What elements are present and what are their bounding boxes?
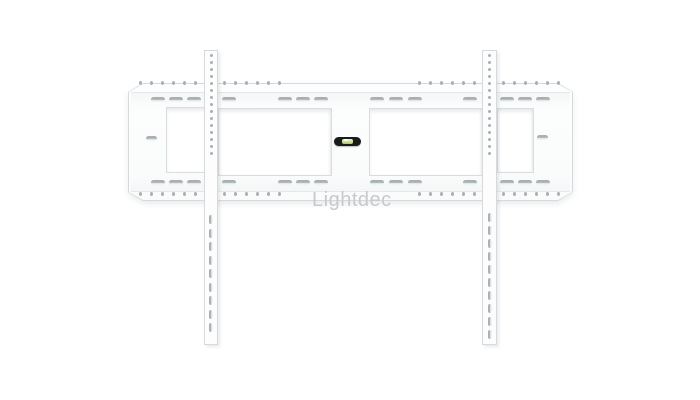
mounting-hole [172, 81, 175, 85]
mounting-slot [314, 180, 328, 185]
mounting-hole [267, 192, 270, 196]
rail-hole [488, 96, 491, 99]
rail-hole [488, 103, 491, 106]
mounting-hole [546, 81, 549, 85]
rail-slot [488, 278, 492, 287]
mounting-slot [536, 180, 550, 185]
rail-hole [488, 152, 491, 155]
mounting-hole [234, 81, 237, 85]
mounting-slot-mid [537, 135, 548, 140]
mounting-hole [473, 192, 476, 196]
rail-hole [488, 61, 491, 64]
mounting-slot [389, 180, 403, 185]
mounting-hole [150, 192, 153, 196]
mounting-hole [440, 81, 443, 85]
rail-hole [488, 117, 491, 120]
rail-slot [209, 323, 213, 332]
mounting-slot [408, 97, 422, 102]
mounting-slot-mid [146, 136, 157, 141]
mounting-hole [256, 81, 259, 85]
mounting-hole [502, 81, 505, 85]
mounting-slot [278, 97, 292, 102]
rail-slot [209, 229, 213, 238]
mounting-hole [473, 81, 476, 85]
rail-hole [210, 96, 213, 99]
mounting-hole [234, 192, 237, 196]
rail-slot [488, 291, 492, 300]
mounting-hole [139, 81, 142, 85]
plate-cutout-right [497, 108, 534, 173]
mounting-hole [513, 81, 516, 85]
mounting-slot [169, 180, 183, 185]
rail-slot [209, 310, 213, 319]
mounting-slot [296, 180, 310, 185]
rail-hole [210, 117, 213, 120]
mounting-hole [150, 81, 153, 85]
rail-hole [210, 103, 213, 106]
mounting-hole [183, 81, 186, 85]
mounting-slot [518, 180, 532, 185]
mounting-slot [518, 97, 532, 102]
mounting-hole [546, 192, 549, 196]
rail-hole [488, 68, 491, 71]
rail-hole [210, 138, 213, 141]
mounting-hole [502, 192, 505, 196]
mounting-hole [223, 192, 226, 196]
rail-hole [210, 68, 213, 71]
vertical-rail-right [482, 50, 497, 345]
rail-slot [209, 269, 213, 278]
mounting-hole [513, 192, 516, 196]
mounting-slot [222, 97, 236, 102]
mounting-hole [245, 81, 248, 85]
mounting-hole [278, 81, 281, 85]
mounting-hole [524, 192, 527, 196]
mounting-hole [462, 192, 465, 196]
rail-hole [488, 124, 491, 127]
watermark-text: Lightdec [312, 189, 390, 212]
mounting-hole [161, 192, 164, 196]
mounting-slot [500, 97, 514, 102]
rail-slot [209, 215, 213, 224]
rail-slot [209, 283, 213, 292]
spirit-level-glare [344, 139, 348, 141]
mounting-slot [463, 97, 477, 102]
mounting-hole [557, 192, 560, 196]
rail-hole [210, 124, 213, 127]
plate-cutout-center-left [218, 108, 332, 176]
rail-slot [209, 256, 213, 265]
mounting-slot [370, 97, 384, 102]
rail-slot [209, 296, 213, 305]
mounting-hole [451, 192, 454, 196]
mounting-slot [151, 180, 165, 185]
mounting-slot [408, 180, 422, 185]
rail-hole [210, 82, 213, 85]
rail-hole [210, 75, 213, 78]
mounting-hole [429, 192, 432, 196]
mounting-slot [314, 97, 328, 102]
mounting-slot [187, 180, 201, 185]
rail-slot [488, 213, 492, 222]
rail-slot [488, 252, 492, 261]
mounting-hole [535, 192, 538, 196]
rail-hole [488, 145, 491, 148]
mounting-slot [187, 97, 201, 102]
rail-slot [209, 242, 213, 251]
mounting-hole [139, 192, 142, 196]
mounting-hole [418, 192, 421, 196]
mounting-hole [256, 192, 259, 196]
rail-hole [210, 89, 213, 92]
rail-hole [210, 145, 213, 148]
rail-slot [488, 330, 492, 339]
rail-hole [488, 131, 491, 134]
mounting-hole [245, 192, 248, 196]
rail-slot [488, 265, 492, 274]
mounting-hole [267, 81, 270, 85]
rail-slot [488, 317, 492, 326]
mounting-hole [524, 81, 527, 85]
rail-hole [488, 75, 491, 78]
plate-cutout-center-right [369, 108, 483, 176]
rail-hole [488, 54, 491, 57]
mounting-hole [172, 192, 175, 196]
rail-hole [210, 110, 213, 113]
mounting-slot [169, 97, 183, 102]
rail-slot [488, 226, 492, 235]
rail-hole [210, 152, 213, 155]
rail-hole [210, 131, 213, 134]
rail-hole [488, 82, 491, 85]
mounting-slot [389, 97, 403, 102]
mounting-hole [278, 192, 281, 196]
plate-cutout-left [166, 107, 209, 173]
mounting-hole [194, 81, 197, 85]
mounting-slot [222, 180, 236, 185]
product-photo: Lightdec [0, 0, 700, 400]
rail-hole [488, 89, 491, 92]
mounting-hole [161, 81, 164, 85]
mounting-hole [183, 192, 186, 196]
rail-hole [488, 138, 491, 141]
mounting-hole [440, 192, 443, 196]
mounting-slot [151, 97, 165, 102]
mounting-hole [451, 81, 454, 85]
spirit-level-vial [342, 139, 353, 144]
mounting-slot [370, 180, 384, 185]
rail-slot [488, 239, 492, 248]
spirit-level [334, 137, 361, 146]
mounting-hole [194, 192, 197, 196]
rail-hole [488, 110, 491, 113]
mounting-hole [429, 81, 432, 85]
rail-hole [210, 54, 213, 57]
mounting-hole [418, 81, 421, 85]
rail-hole [210, 61, 213, 64]
mounting-hole [557, 81, 560, 85]
mounting-slot [296, 97, 310, 102]
mounting-hole [462, 81, 465, 85]
mounting-hole [535, 81, 538, 85]
mounting-slot [500, 180, 514, 185]
rail-slot [488, 304, 492, 313]
mounting-hole [223, 81, 226, 85]
mounting-slot [278, 180, 292, 185]
mounting-slot [463, 180, 477, 185]
mounting-slot [536, 97, 550, 102]
